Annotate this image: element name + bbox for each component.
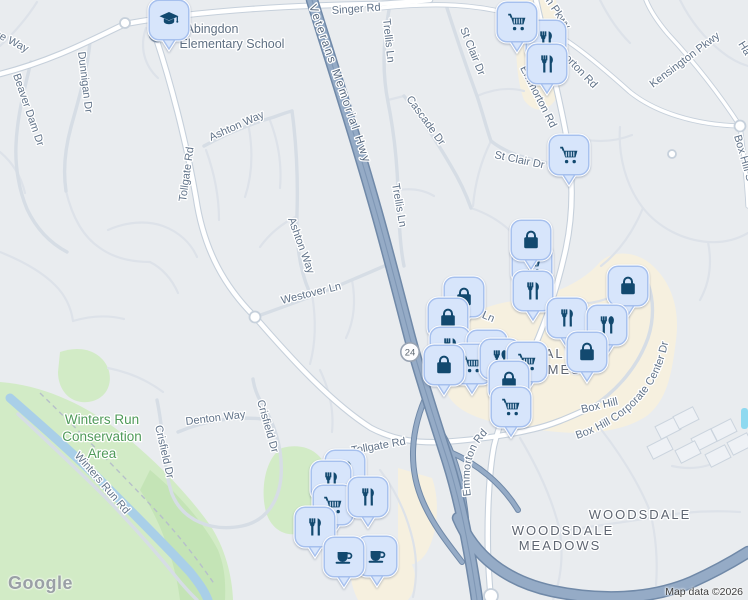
poi-pin-cart[interactable] — [547, 133, 591, 189]
poi-pin-cart[interactable] — [489, 385, 533, 441]
label-school-name-line2: Elementary School — [180, 37, 285, 51]
route-24-number: 24 — [405, 348, 416, 359]
google-logo[interactable]: Google — [8, 573, 73, 594]
water-pool — [741, 408, 748, 429]
coffee-icon — [369, 551, 385, 563]
poi-pin-restaurant[interactable] — [525, 42, 569, 98]
coffee-icon — [336, 552, 352, 564]
label-woodsdale-meadows-line1: WOODSDALE — [512, 523, 615, 538]
poi-pin-school[interactable] — [147, 0, 191, 54]
poi-pin-bag[interactable] — [509, 218, 553, 274]
route-24-shield: 24 — [401, 343, 419, 361]
label-woodsdale-meadows-line2: MEADOWS — [519, 538, 602, 553]
label-winters-run-line2: Conservation — [62, 429, 142, 444]
poi-pin-restaurant[interactable] — [346, 475, 390, 531]
map-attribution: Map data ©2026 — [665, 586, 743, 598]
label-woodsdale: WOODSDALE — [589, 507, 692, 522]
poi-pin-bag[interactable] — [565, 330, 609, 386]
poi-pin-coffee[interactable] — [322, 535, 366, 591]
label-winters-run-line3: Area — [88, 446, 117, 461]
label-school-name-line1: Abingdon — [186, 22, 239, 36]
label-winters-run-line1: Winters Run — [65, 412, 139, 427]
poi-pin-bag[interactable] — [422, 343, 466, 399]
map-canvas[interactable]: 24 Singer RdTrellis LnTrellis LnCascade … — [0, 0, 748, 600]
